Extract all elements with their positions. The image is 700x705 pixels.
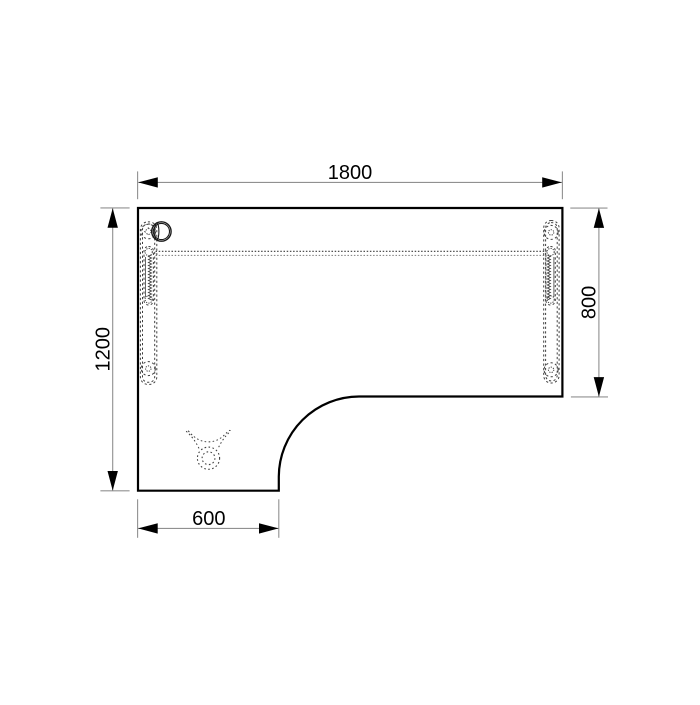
svg-text:1200: 1200 (93, 327, 115, 372)
svg-text:600: 600 (192, 508, 225, 530)
svg-text:800: 800 (578, 286, 600, 319)
svg-text:1800: 1800 (328, 162, 373, 184)
